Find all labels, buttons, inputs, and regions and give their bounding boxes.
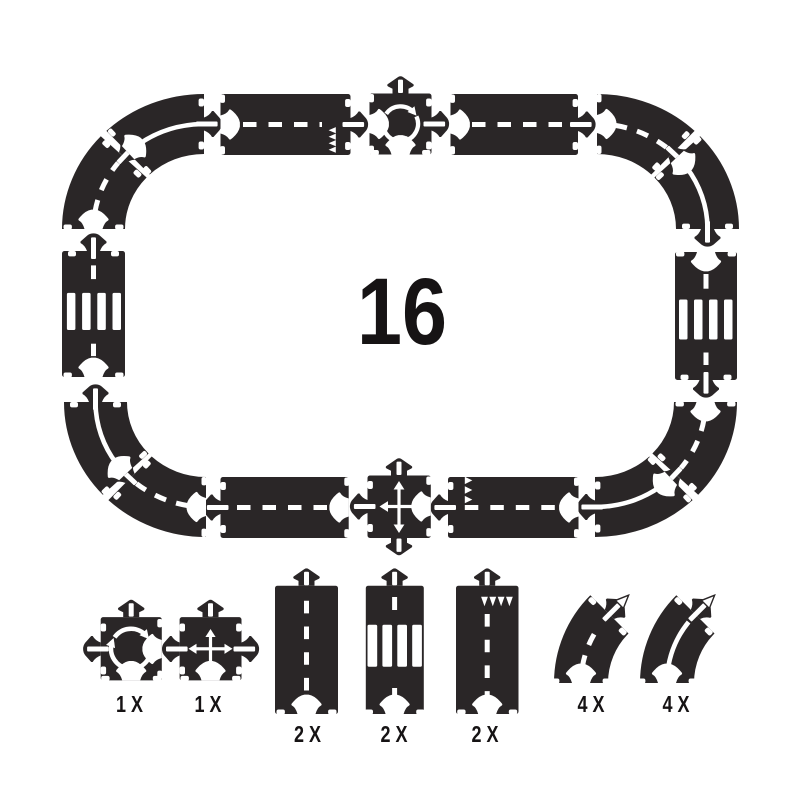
svg-text:2 X: 2 X — [381, 721, 408, 747]
svg-text:1 X: 1 X — [116, 691, 143, 717]
svg-text:1 X: 1 X — [195, 691, 222, 717]
svg-text:2 X: 2 X — [472, 721, 499, 747]
svg-text:16: 16 — [357, 259, 447, 365]
svg-text:2 X: 2 X — [294, 721, 321, 747]
svg-text:4 X: 4 X — [578, 691, 605, 717]
svg-text:4 X: 4 X — [663, 691, 690, 717]
